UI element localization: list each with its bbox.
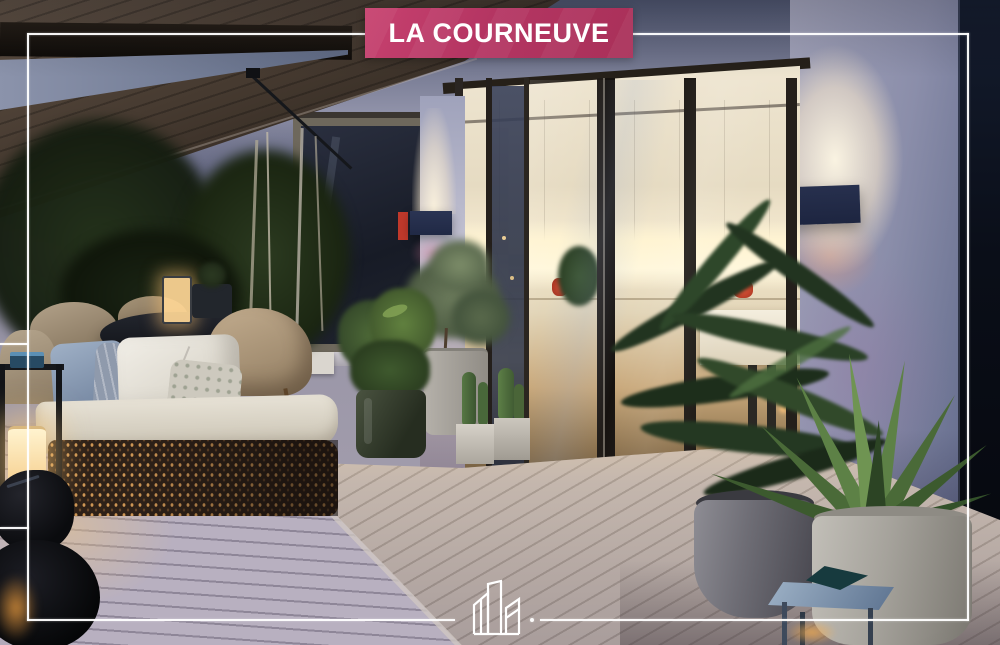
frame-left-tick-upper [0,343,28,345]
city-banner: LA COURNEUVE [365,8,633,58]
table-plant-sprigs [198,262,226,288]
frame-dot [530,618,534,622]
cactus-planter-1 [456,424,494,464]
wicker-shadow-right [48,440,338,516]
green-glossy-pot [356,390,426,458]
wall-sconce-left [410,211,452,235]
olive-foliage-2 [430,240,490,290]
stool-leg-2 [868,608,873,645]
frame-left-line [27,33,29,621]
cactus-1 [462,372,476,428]
pot-gloss [364,398,372,444]
awning-arm-bracket [246,68,260,78]
sofa-wicker-base [48,440,338,516]
table-lantern [162,276,192,324]
cactus-planter-2 [494,418,530,460]
sconce-light-cone [412,108,456,214]
cactus-4 [514,384,524,422]
frame-bottom-right-segment [540,619,969,621]
buildings-logo [466,577,526,637]
frame-left-tick-lower [0,527,29,529]
city-banner-label: LA COURNEUVE [388,18,609,49]
olive-foliage-3 [452,290,510,345]
agave-plant [790,340,970,530]
stool-leg-1 [782,602,787,645]
frame-right-line [967,33,969,621]
stool-candle-glow [786,620,838,645]
bokeh-dot-2 [510,276,514,280]
frame-bottom-left-segment [27,619,455,621]
cactus-3 [498,368,514,422]
red-art-through-window [398,212,408,240]
table-plant-pot [192,284,232,318]
object-highlight [6,475,39,488]
bokeh-dot-1 [502,236,506,240]
terrace-photo: LA COURNEUVE [0,0,1000,645]
cactus-2 [478,382,488,426]
